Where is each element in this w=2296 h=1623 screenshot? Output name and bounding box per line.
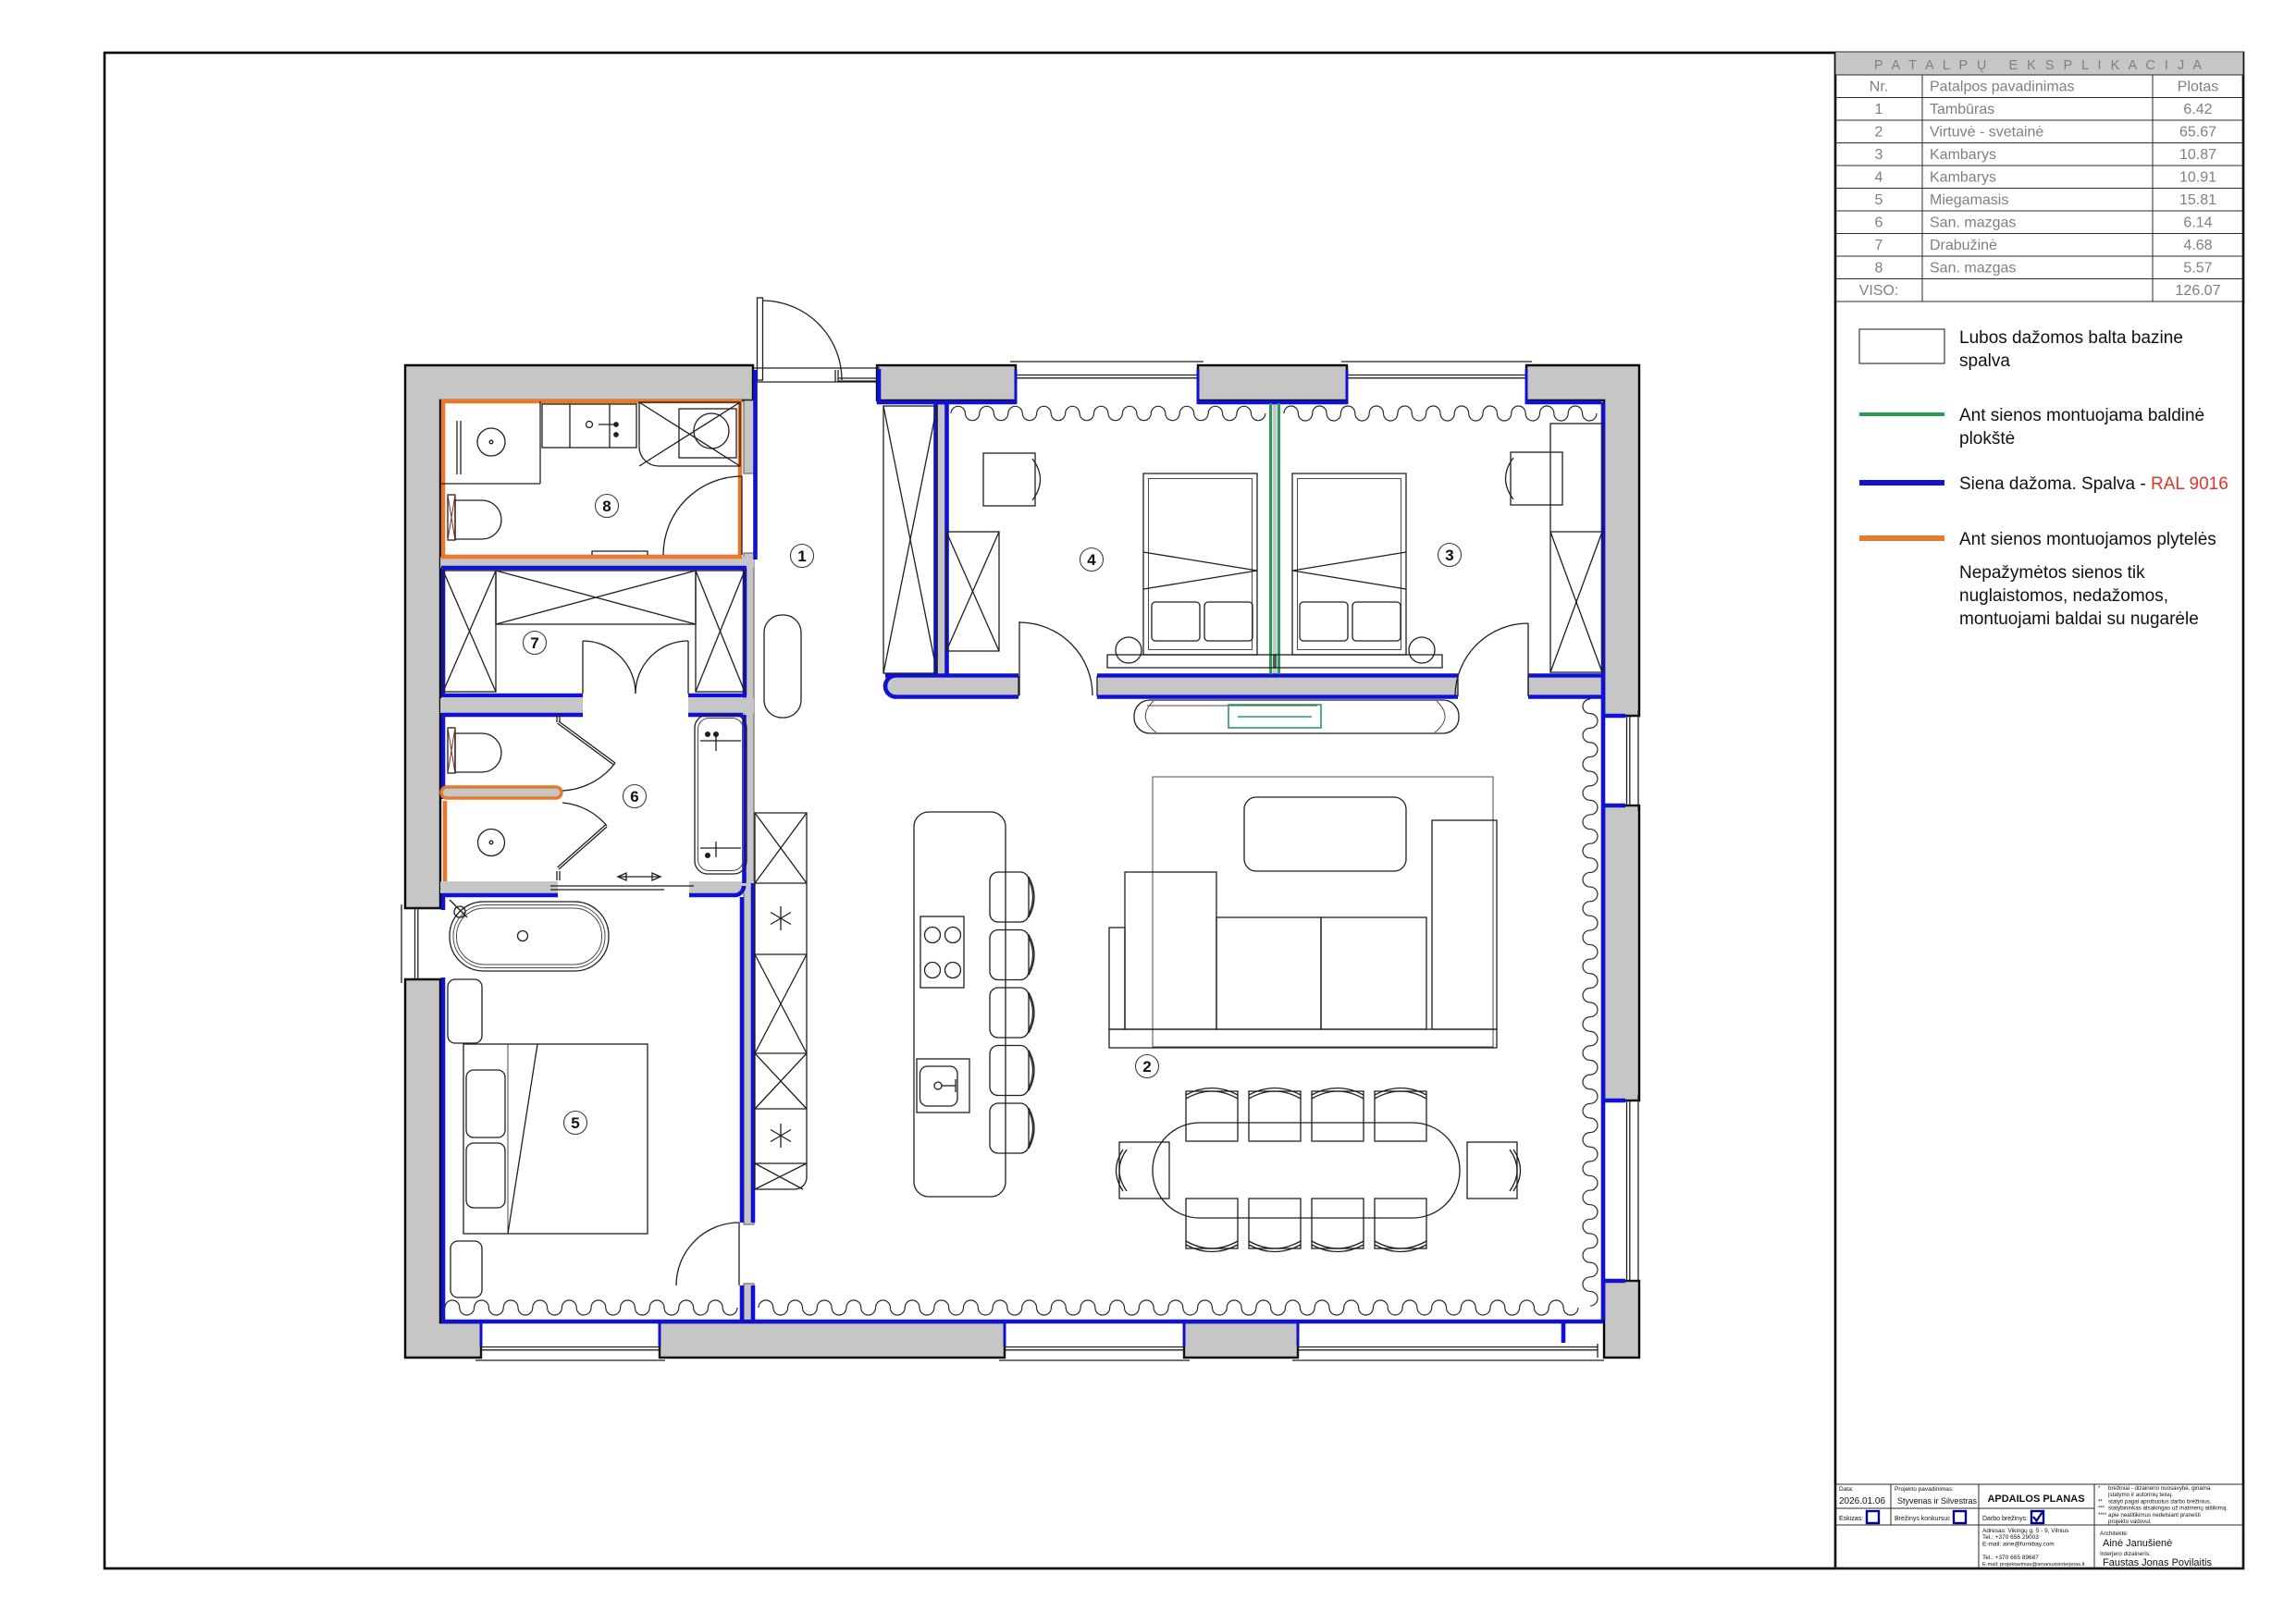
svg-text:projekto vadovui.: projekto vadovui.	[2108, 1518, 2152, 1525]
svg-text:plokštė: plokštė	[1959, 429, 2015, 449]
svg-text:6.42: 6.42	[2183, 102, 2212, 117]
svg-text:San. mazgas: San. mazgas	[1930, 261, 2016, 277]
svg-text:Ant sienos montuojamos plytelė: Ant sienos montuojamos plytelės	[1959, 530, 2216, 549]
svg-text:Virtuvė - svetainė: Virtuvė - svetainė	[1930, 125, 2043, 141]
svg-text:7: 7	[530, 634, 538, 652]
svg-text:Patalpos pavadinimas: Patalpos pavadinimas	[1930, 80, 2075, 95]
svg-text:Miegamasis: Miegamasis	[1930, 192, 2008, 208]
svg-text:7: 7	[1875, 238, 1883, 253]
svg-text:Ainė Janušienė: Ainė Janušienė	[2103, 1538, 2172, 1549]
svg-text:statybininkas atsakingas už ma: statybininkas atsakingas už matmenų atit…	[2108, 1506, 2228, 1512]
svg-text:4.68: 4.68	[2183, 238, 2212, 253]
svg-text:Interjero dizaineris:: Interjero dizaineris:	[2100, 1551, 2151, 1557]
svg-text:Architektė:: Architektė:	[2100, 1531, 2129, 1537]
svg-text:Data:: Data:	[1839, 1486, 1854, 1493]
svg-text:San. mazgas: San. mazgas	[1930, 215, 2016, 231]
svg-text:E-mail: projektavimas@amanusis: E-mail: projektavimas@amanusisinterjeras…	[1982, 1562, 2085, 1568]
svg-text:montuojami baldai su nugarėle: montuojami baldai su nugarėle	[1959, 609, 2199, 629]
svg-text:10.91: 10.91	[2179, 170, 2216, 186]
svg-text:Siena dažoma. Spalva - RAL 901: Siena dažoma. Spalva - RAL 9016	[1959, 474, 2228, 494]
svg-text:Brėžinys konkursui:: Brėžinys konkursui:	[1895, 1516, 1951, 1522]
svg-text:2026.01.06: 2026.01.06	[1839, 1496, 1885, 1506]
svg-text:Tel.: +370 656 29003: Tel.: +370 656 29003	[1982, 1534, 2039, 1541]
svg-text:2: 2	[1875, 125, 1883, 141]
svg-text:126.07: 126.07	[2176, 283, 2221, 299]
svg-text:6.14: 6.14	[2183, 215, 2212, 231]
svg-text:5: 5	[1875, 192, 1883, 208]
svg-text:brėžiniai - dizainerio nuosavy: brėžiniai - dizainerio nuosavybė, ginama	[2108, 1485, 2211, 1492]
svg-text:Faustas Jonas Povilaitis: Faustas Jonas Povilaitis	[2103, 1557, 2212, 1568]
svg-text:1: 1	[797, 547, 806, 565]
svg-text:Projekto pavadinimas:: Projekto pavadinimas:	[1895, 1486, 1954, 1493]
svg-text:Nepažymėtos sienos tik: Nepažymėtos sienos tik	[1959, 563, 2145, 583]
svg-text:***: ***	[2098, 1506, 2105, 1512]
svg-text:Adresas: Vikingų g. 5 - 9, Vil: Adresas: Vikingų g. 5 - 9, Vilnius	[1982, 1528, 2069, 1534]
svg-text:įstatymo ir autorinių teisų.: įstatymo ir autorinių teisų.	[2108, 1492, 2173, 1498]
svg-text:Nr.: Nr.	[1870, 80, 1888, 95]
svg-text:Eskizas:: Eskizas:	[1839, 1516, 1863, 1522]
svg-text:E-mail: aine@furnibay.com: E-mail: aine@furnibay.com	[1982, 1541, 2055, 1547]
svg-text:2: 2	[1142, 1058, 1151, 1076]
svg-text:1: 1	[1875, 102, 1883, 117]
svg-text:P A T A L P Ų E K S P L I K: P A T A L P Ų E K S P L I K A C I J A	[1874, 58, 2204, 73]
svg-text:spalva: spalva	[1959, 351, 2010, 371]
svg-text:5: 5	[571, 1114, 579, 1132]
svg-text:15.81: 15.81	[2179, 192, 2216, 208]
svg-text:Tel.: +370 665 89687: Tel.: +370 665 89687	[1982, 1555, 2039, 1561]
svg-text:Kambarys: Kambarys	[1930, 147, 1996, 163]
svg-text:Plotas: Plotas	[2178, 80, 2218, 95]
svg-text:APDAILOS PLANAS: APDAILOS PLANAS	[1987, 1494, 2084, 1505]
svg-text:Lubos dažomos balta bazine: Lubos dažomos balta bazine	[1959, 328, 2183, 348]
svg-text:Ant sienos montuojama baldinė: Ant sienos montuojama baldinė	[1959, 406, 2204, 425]
svg-text:8: 8	[602, 498, 611, 515]
svg-text:**: **	[2098, 1499, 2103, 1505]
svg-text:4: 4	[1087, 551, 1096, 569]
svg-text:statyti pagal aprobuotus darbo: statyti pagal aprobuotus darbo brėžinius…	[2108, 1498, 2212, 1505]
svg-text:5.57: 5.57	[2183, 261, 2212, 277]
svg-text:Tambūras: Tambūras	[1930, 102, 1994, 117]
svg-text:4: 4	[1875, 170, 1883, 186]
svg-text:3: 3	[1445, 547, 1453, 564]
svg-text:VISO:: VISO:	[1859, 283, 1899, 299]
svg-text:Styvenas ir Silvestras: Styvenas ir Silvestras	[1897, 1496, 1978, 1506]
svg-text:8: 8	[1875, 261, 1883, 277]
svg-text:10.87: 10.87	[2179, 147, 2216, 163]
svg-text:Drabužinė: Drabužinė	[1930, 238, 1997, 253]
svg-text:apie neatitikimus nedelsiant p: apie neatitikimus nedelsiant pranešti	[2108, 1512, 2201, 1518]
svg-text:Kambarys: Kambarys	[1930, 170, 1996, 186]
svg-text:Darbo brėžinys:: Darbo brėžinys:	[1982, 1516, 2028, 1522]
svg-text:****: ****	[2098, 1513, 2107, 1518]
svg-text:6: 6	[630, 788, 638, 805]
svg-text:nuglaistomos, nedažomos,: nuglaistomos, nedažomos,	[1959, 586, 2168, 606]
svg-text:6: 6	[1875, 215, 1883, 231]
svg-text:3: 3	[1875, 147, 1883, 163]
svg-text:65.67: 65.67	[2179, 125, 2216, 141]
